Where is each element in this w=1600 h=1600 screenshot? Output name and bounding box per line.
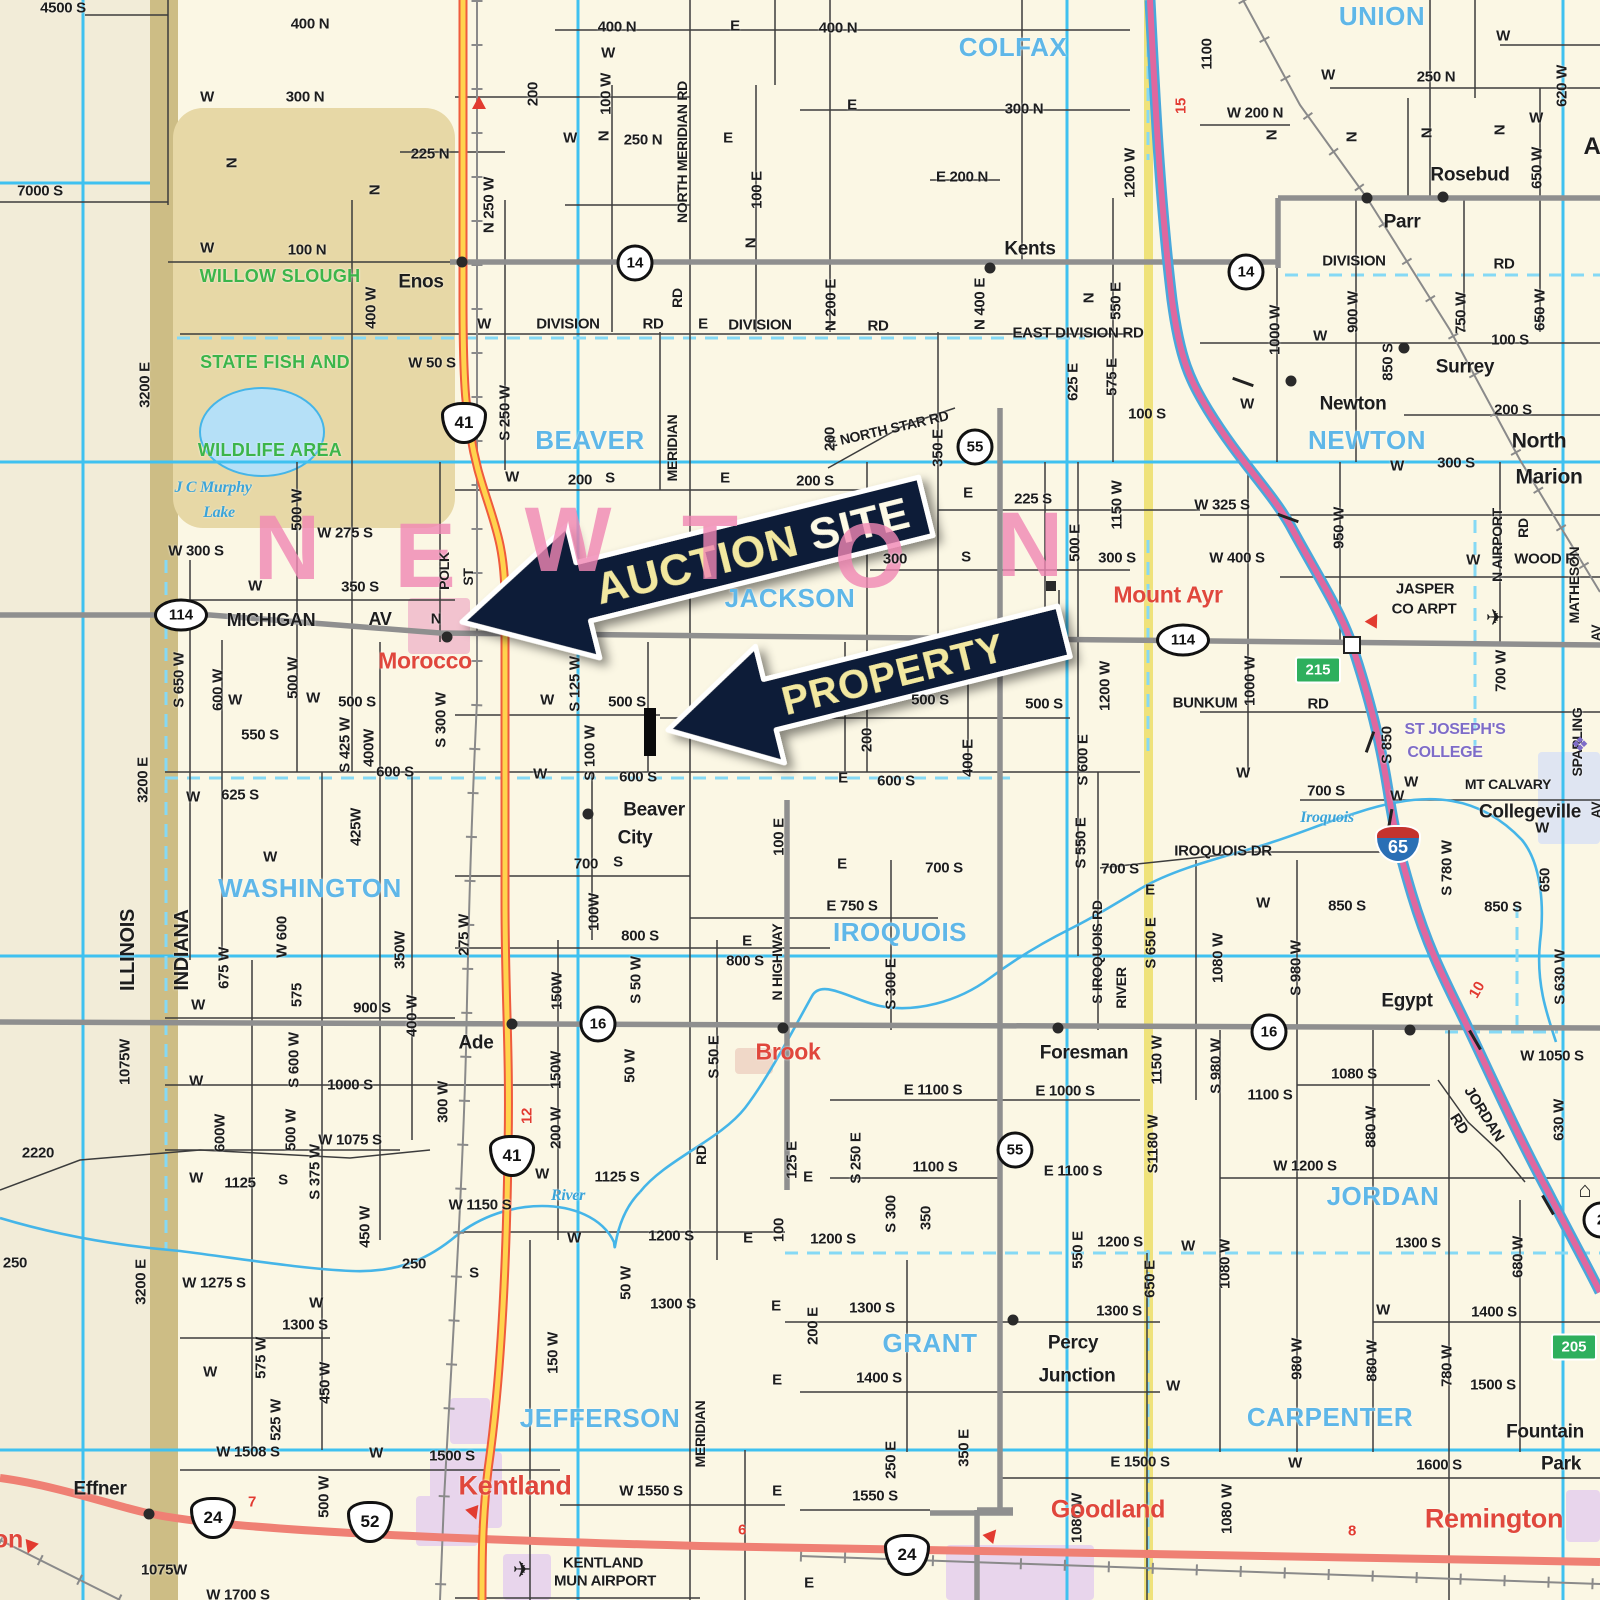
- route-shield-114: 114: [154, 599, 208, 632]
- college-icon: ❖: [1571, 735, 1589, 755]
- town-dot: [442, 632, 453, 643]
- us-route-shield-24: 24: [190, 1497, 236, 1539]
- route-shield-215: 215: [1295, 657, 1341, 684]
- us-route-shield-24: 24: [884, 1534, 930, 1576]
- route-shield-14: 14: [617, 245, 654, 282]
- town-dot: [985, 263, 996, 274]
- road-map: AUCTION SITE PROPERTY NEWTON 4500 S7000 …: [0, 0, 1600, 1600]
- town-dot: [1053, 1023, 1064, 1034]
- town-dot: [583, 809, 594, 820]
- town-dot: [1399, 343, 1410, 354]
- town-dot: [1046, 581, 1056, 591]
- us-route-shield-41: 41: [489, 1135, 535, 1177]
- route-shield-2: 2: [1583, 1202, 1600, 1239]
- interstate-shield-65: 65: [1375, 825, 1421, 863]
- town-dot: [1286, 376, 1297, 387]
- town-dot: [1405, 1025, 1416, 1036]
- map-symbols: 4141242452141455551616211411421520565✈✈❖…: [0, 0, 1600, 1600]
- route-shield-55: 55: [957, 429, 994, 466]
- town-dot: [1362, 193, 1373, 204]
- property-location-marker: [644, 708, 656, 756]
- route-shield-16: 16: [1251, 1014, 1288, 1051]
- town-dot: [144, 1509, 155, 1520]
- town-dot: [507, 1019, 518, 1030]
- route-shield-114: 114: [1156, 624, 1210, 657]
- us-route-shield-52: 52: [347, 1501, 393, 1543]
- airport-icon: ✈: [1486, 607, 1504, 629]
- mileage-arrow-icon: [21, 1539, 39, 1556]
- house-icon: ⌂: [1578, 1179, 1591, 1201]
- route-shield-16: 16: [580, 1006, 617, 1043]
- route-shield-14: 14: [1228, 254, 1265, 291]
- mileage-arrow-icon: [472, 96, 486, 109]
- town-dot: [1008, 1315, 1019, 1326]
- mileage-arrow-icon: [465, 1505, 483, 1522]
- us-route-shield-41: 41: [441, 402, 487, 444]
- route-shield-205: 205: [1551, 1334, 1597, 1361]
- town-dot: [778, 1023, 789, 1034]
- mileage-arrow-icon: [982, 1525, 1001, 1544]
- town-dot: [1438, 192, 1449, 203]
- route-shield-55: 55: [997, 1132, 1034, 1169]
- town-dot: [457, 257, 468, 268]
- airport-icon: ✈: [513, 1559, 531, 1581]
- mileage-arrow-icon: [1365, 610, 1384, 628]
